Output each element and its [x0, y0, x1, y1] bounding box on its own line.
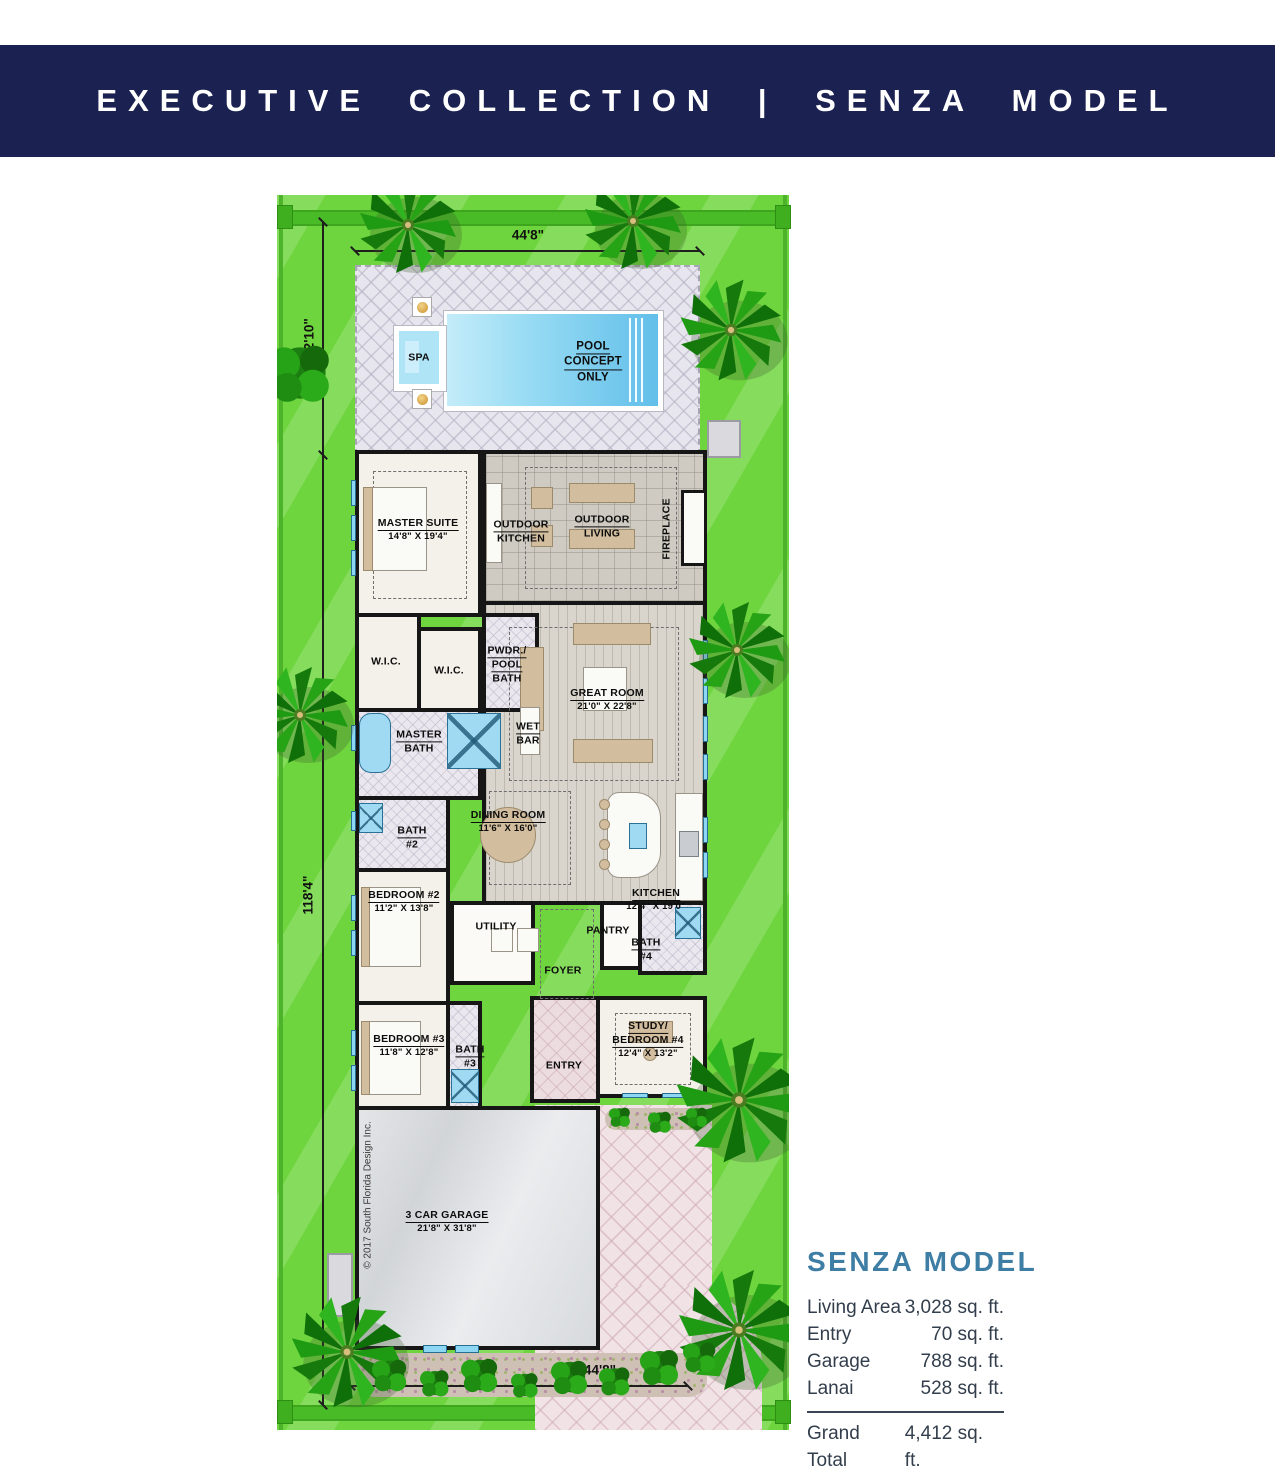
- room-label-wet-bar: WETBAR: [516, 720, 540, 747]
- stat-label: Lanai: [807, 1375, 854, 1402]
- room-label-bedroom-2: BEDROOM #211'2" X 13'8": [368, 889, 439, 915]
- stat-label: Entry: [807, 1321, 851, 1348]
- window: [703, 817, 708, 843]
- garden-bed-front: [357, 1353, 707, 1397]
- room-label-entry: ENTRY: [546, 1059, 582, 1072]
- bath3-shower: [451, 1069, 479, 1103]
- stats-title: SENZA MODEL: [807, 1246, 1004, 1278]
- dryer: [517, 928, 539, 952]
- stat-label: Living Area: [807, 1294, 901, 1321]
- window: [351, 1065, 356, 1091]
- room-label-garage: 3 CAR GARAGE21'8" X 31'8": [406, 1209, 489, 1235]
- stat-value: 70 sq. ft.: [931, 1321, 1004, 1348]
- window: [351, 811, 356, 831]
- window: [703, 640, 708, 666]
- page-title: EXECUTIVE COLLECTION | SENZA MODEL: [96, 83, 1178, 119]
- window: [351, 480, 356, 506]
- brochure-page: EXECUTIVE COLLECTION | SENZA MODEL 44'8"…: [0, 0, 1275, 1470]
- island-stool: [599, 859, 610, 870]
- property-post: [277, 1400, 293, 1424]
- room-entry: [530, 996, 600, 1103]
- window: [351, 515, 356, 541]
- fireplace-unit: [681, 490, 707, 566]
- room-label-bath-3: BATH#3: [455, 1043, 484, 1070]
- dimension-line-side-lower: [322, 455, 324, 1405]
- equipment-pad: [707, 420, 741, 458]
- garden-bed-study: [605, 1108, 709, 1130]
- room-label-bath-2: BATH#2: [397, 824, 426, 851]
- window: [351, 1030, 356, 1056]
- garage-door-vent: [423, 1345, 447, 1353]
- room-label-study-bedroom-4: STUDY/BEDROOM #412'4" X 13'2": [612, 1020, 683, 1060]
- room-label-bedroom-3: BEDROOM #311'8" X 12'8": [373, 1033, 444, 1059]
- stat-row-living-area: Living Area 3,028 sq. ft.: [807, 1294, 1004, 1321]
- window: [703, 852, 708, 878]
- property-line-right: [783, 195, 787, 1430]
- window: [703, 754, 708, 780]
- room-label-great-room: GREAT ROOM21'0" X 22'8": [570, 687, 644, 713]
- dimension-label-top: 44'8": [512, 228, 544, 243]
- fire-bowl: [412, 297, 432, 317]
- dimension-line-side-upper: [322, 222, 324, 455]
- window: [351, 725, 356, 751]
- window: [662, 1093, 688, 1098]
- stat-value: 3,028 sq. ft.: [905, 1294, 1004, 1321]
- pool-label: POOLCONCEPTONLY: [564, 339, 622, 384]
- stat-row-garage: Garage 788 sq. ft.: [807, 1348, 1004, 1375]
- island-stool: [599, 799, 610, 810]
- spa-label: SPA: [408, 351, 429, 364]
- dimension-label-bottom: 44'8": [584, 1363, 616, 1378]
- window: [703, 716, 708, 742]
- room-label-foyer: FOYER: [544, 964, 581, 977]
- room-label-utility: UTILITY: [475, 920, 516, 933]
- lanai-sofa: [569, 483, 635, 503]
- range: [679, 831, 699, 857]
- room-label-master-suite: MASTER SUITE14'8" X 19'4": [378, 517, 459, 543]
- room-label-wic-1: W.I.C.: [371, 655, 401, 668]
- dimension-line-top: [355, 250, 700, 252]
- property-line-top: [281, 210, 785, 226]
- window: [351, 550, 356, 576]
- room-label-fireplace: FIREPLACE: [660, 498, 673, 559]
- stat-row-entry: Entry 70 sq. ft.: [807, 1321, 1004, 1348]
- stat-label: Garage: [807, 1348, 870, 1375]
- window: [351, 930, 356, 956]
- window: [622, 1093, 648, 1098]
- master-shower: [447, 713, 501, 769]
- lanai-chair: [531, 487, 553, 509]
- stat-row-grand-total: Grand Total 4,412 sq. ft.: [807, 1420, 1004, 1470]
- island-sink: [629, 823, 647, 849]
- pool-step: [635, 318, 637, 402]
- master-tub: [359, 713, 391, 773]
- fire-bowl: [412, 389, 432, 409]
- stat-value: 788 sq. ft.: [921, 1348, 1004, 1375]
- pool-step: [629, 318, 631, 402]
- room-label-outdoor-living: OUTDOORLIVING: [574, 513, 629, 540]
- room-label-outdoor-kitchen: OUTDOORKITCHEN: [493, 518, 548, 545]
- pool-water: [447, 314, 658, 406]
- bath2-shower: [359, 803, 383, 833]
- property-post: [277, 205, 293, 229]
- room-label-kitchen: KITCHEN12'4" X 19'0": [626, 887, 685, 913]
- great-room-sofa: [573, 739, 653, 763]
- copyright-text: © 2017 South Florida Design Inc.: [363, 1121, 374, 1268]
- property-post: [775, 205, 791, 229]
- room-label-pantry: PANTRY: [586, 924, 629, 937]
- stats-panel: SENZA MODEL Living Area 3,028 sq. ft. En…: [807, 1246, 1004, 1470]
- room-label-dining-room: DINING ROOM11'6" X 16'0": [471, 809, 546, 835]
- stat-row-lanai: Lanai 528 sq. ft.: [807, 1375, 1004, 1402]
- room-label-master-bath: MASTERBATH: [396, 728, 442, 755]
- site-plan: 44'8" 22'10" 118'4" 44'8": [277, 195, 789, 1430]
- stats-divider: [807, 1411, 1004, 1413]
- title-banner: EXECUTIVE COLLECTION | SENZA MODEL: [0, 45, 1275, 157]
- stat-value: 528 sq. ft.: [921, 1375, 1004, 1402]
- dimension-line-bottom: [350, 1385, 688, 1387]
- window: [351, 895, 356, 921]
- pool-step: [641, 318, 643, 402]
- island-stool: [599, 839, 610, 850]
- foyer-runner: [540, 909, 594, 999]
- property-post: [775, 1400, 791, 1424]
- room-label-wic-2: W.I.C.: [434, 664, 464, 677]
- bedroom3-headboard: [361, 1021, 370, 1095]
- dimension-label-side-lower: 118'4": [301, 876, 316, 915]
- stat-value: 4,412 sq. ft.: [905, 1420, 1004, 1470]
- stat-label: Grand Total: [807, 1420, 905, 1470]
- garage-door-vent: [455, 1345, 479, 1353]
- window: [703, 678, 708, 704]
- dimension-label-side-upper: 22'10": [302, 318, 317, 358]
- side-stoop: [327, 1253, 353, 1317]
- master-headboard: [363, 487, 373, 571]
- property-line-left: [279, 195, 283, 1430]
- room-label-bath-4: BATH#4: [631, 936, 660, 963]
- great-room-sofa: [573, 623, 651, 645]
- room-label-powder-pool-bath: PWDR./POOLBATH: [487, 644, 526, 685]
- island-stool: [599, 819, 610, 830]
